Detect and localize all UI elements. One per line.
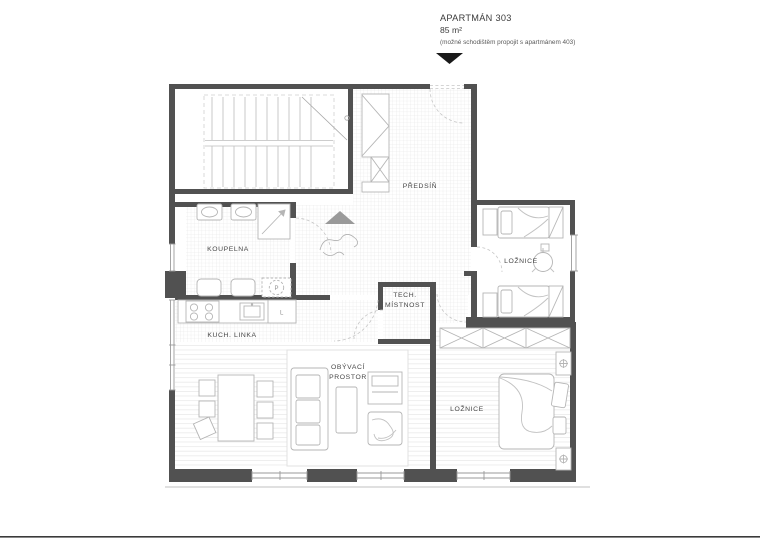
title-block: APARTMÁN 303 85 m² (možné schodištěm pro… bbox=[436, 13, 575, 64]
apartment-area: 85 m² bbox=[440, 25, 462, 35]
side-table-base bbox=[541, 244, 549, 251]
toilet-1 bbox=[197, 279, 221, 296]
tv-cabinet bbox=[368, 372, 402, 404]
chair bbox=[257, 381, 273, 397]
double-bed bbox=[499, 374, 554, 449]
entrance-arrow-icon bbox=[436, 53, 463, 64]
room-label-bedroom2: LOŽNICE bbox=[450, 404, 484, 413]
floorplan-drawing: P L bbox=[0, 0, 760, 540]
room-label-bedroom1: LOŽNICE bbox=[504, 256, 538, 265]
staircase bbox=[204, 95, 349, 188]
chair bbox=[199, 380, 215, 396]
pillow bbox=[501, 211, 512, 234]
pillow bbox=[501, 290, 512, 313]
coffee-table bbox=[336, 387, 357, 433]
room-label-bathroom: KOUPELNA bbox=[207, 246, 249, 253]
dining-table bbox=[218, 375, 254, 441]
room-label-living-1: OBÝVACÍ bbox=[331, 362, 365, 371]
room-label-kitchen: KUCH. LINKA bbox=[207, 332, 256, 339]
dining-set bbox=[193, 375, 273, 441]
floorplan-page: P L bbox=[0, 0, 760, 540]
nightstand bbox=[483, 293, 497, 317]
apartment-title: APARTMÁN 303 bbox=[440, 13, 512, 23]
page-bottom-rule bbox=[0, 536, 760, 538]
nightstand bbox=[483, 209, 497, 235]
toilet-2 bbox=[231, 279, 255, 296]
room-label-tech-2: MÍSTNOST bbox=[385, 300, 425, 309]
room-label-living-2: PROSTOR bbox=[329, 374, 367, 381]
chair bbox=[257, 402, 273, 418]
chair bbox=[257, 423, 273, 439]
chair bbox=[199, 401, 215, 417]
room-label-hallway: PŘEDSÍŇ bbox=[403, 181, 437, 190]
kitchen-counter bbox=[178, 300, 296, 323]
apartment-note: (možné schodištěm propojit s apartmánem … bbox=[440, 39, 575, 46]
pillow bbox=[553, 417, 566, 434]
washer-label: P bbox=[275, 286, 279, 292]
room-label-tech-1: TECH. bbox=[393, 292, 416, 299]
